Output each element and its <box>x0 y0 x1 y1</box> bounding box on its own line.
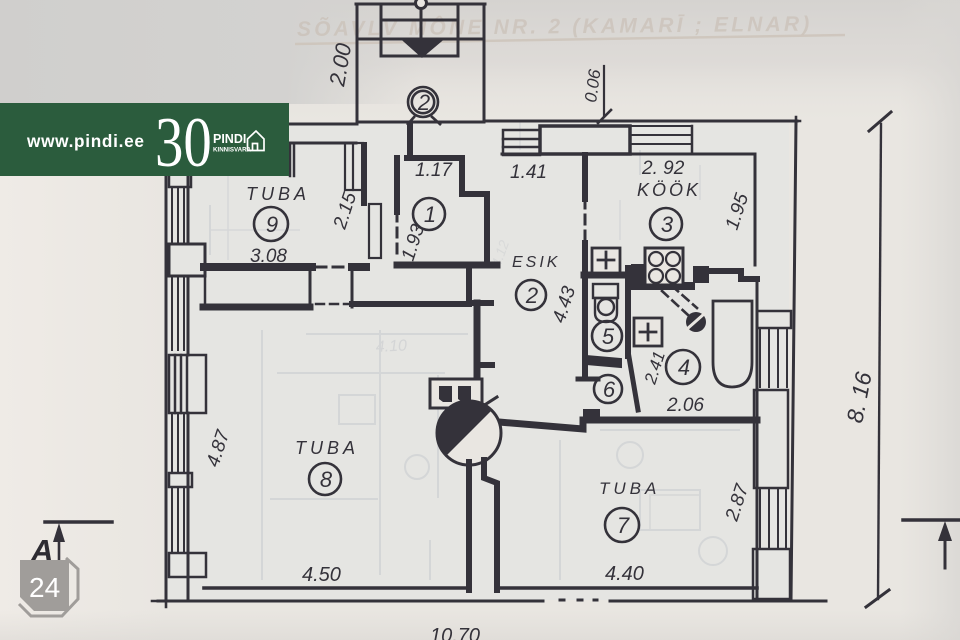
svg-text:1.17: 1.17 <box>415 160 453 181</box>
svg-text:TUBA: TUBA <box>295 438 359 458</box>
svg-text:KÖÖK: KÖÖK <box>637 180 701 200</box>
svg-text:4.40: 4.40 <box>605 563 644 585</box>
svg-text:24: 24 <box>29 572 60 603</box>
svg-text:2: 2 <box>525 283 538 308</box>
svg-text:5: 5 <box>602 324 615 349</box>
svg-text:TUBA: TUBA <box>246 184 310 204</box>
svg-text:2: 2 <box>417 90 430 115</box>
svg-text:www.pindi.ee: www.pindi.ee <box>26 131 145 151</box>
svg-text:6: 6 <box>603 377 616 402</box>
svg-text:TUBA: TUBA <box>599 479 660 498</box>
svg-text:4.10: 4.10 <box>375 337 407 356</box>
svg-text:2. 92: 2. 92 <box>641 158 685 179</box>
svg-text:1.41: 1.41 <box>510 162 547 183</box>
svg-text:30: 30 <box>155 103 212 181</box>
svg-text:ESIK: ESIK <box>512 254 560 271</box>
svg-text:PINDI: PINDI <box>213 132 246 146</box>
svg-text:1: 1 <box>424 202 436 227</box>
svg-text:4.50: 4.50 <box>302 564 341 586</box>
svg-text:8: 8 <box>320 467 333 492</box>
svg-text:3: 3 <box>661 212 674 237</box>
svg-text:4: 4 <box>678 355 690 380</box>
svg-text:2.06: 2.06 <box>666 395 704 416</box>
svg-text:7: 7 <box>617 513 630 538</box>
svg-text:3.08: 3.08 <box>250 246 287 267</box>
svg-text:KINNISVARA: KINNISVARA <box>213 147 252 154</box>
svg-text:9: 9 <box>266 212 278 237</box>
svg-text:10.70: 10.70 <box>430 625 480 640</box>
